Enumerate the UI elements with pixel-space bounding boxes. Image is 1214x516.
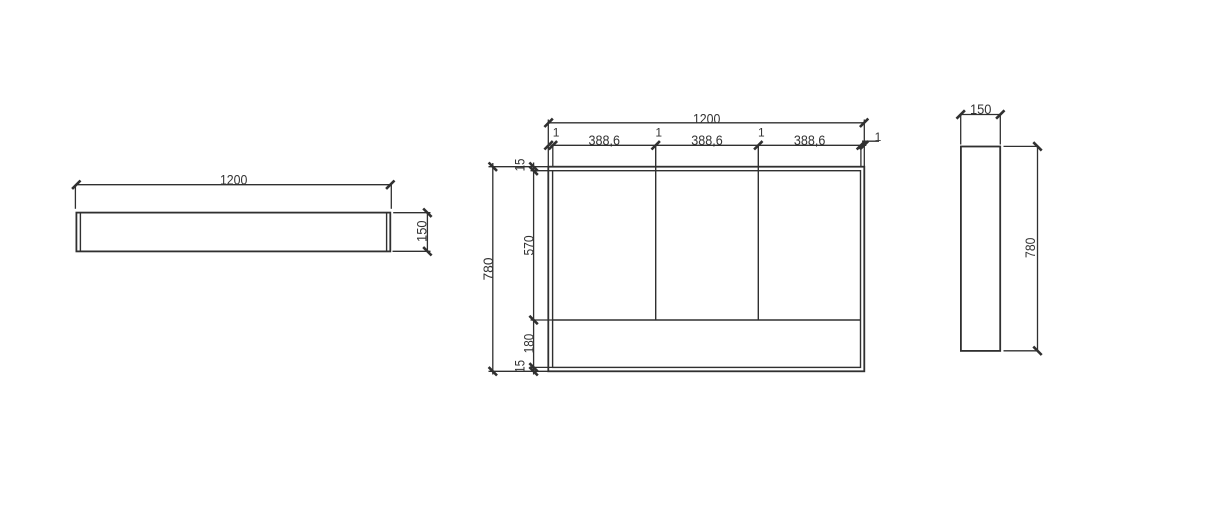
svg-text:180: 180 [520, 334, 536, 354]
svg-text:1: 1 [875, 130, 882, 144]
svg-text:1200: 1200 [693, 110, 721, 126]
svg-text:1: 1 [758, 126, 765, 140]
svg-text:780: 780 [1022, 237, 1038, 257]
svg-text:570: 570 [520, 235, 536, 255]
svg-text:150: 150 [413, 220, 429, 242]
svg-text:150: 150 [970, 101, 992, 117]
svg-text:1: 1 [655, 126, 662, 140]
svg-text:15: 15 [512, 158, 528, 171]
svg-text:1: 1 [553, 126, 560, 140]
svg-text:15: 15 [512, 360, 528, 373]
svg-text:1200: 1200 [220, 171, 248, 187]
svg-text:388,6: 388,6 [794, 132, 826, 148]
svg-text:780: 780 [480, 257, 496, 280]
svg-text:388,6: 388,6 [691, 132, 723, 148]
svg-text:388,6: 388,6 [589, 132, 621, 148]
